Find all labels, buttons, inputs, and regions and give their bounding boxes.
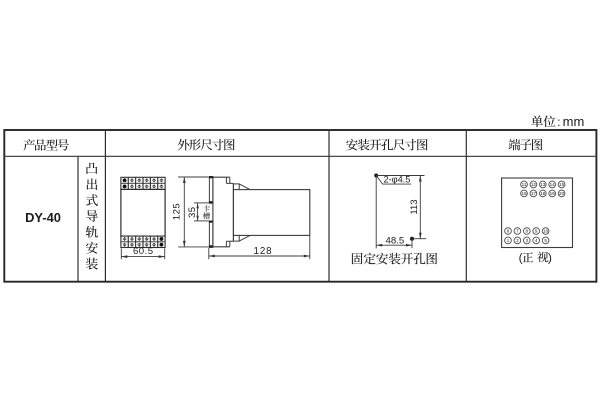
svg-text:8: 8 bbox=[526, 229, 529, 234]
svg-text:125: 125 bbox=[171, 203, 182, 220]
svg-text:12: 12 bbox=[531, 182, 537, 187]
svg-text:128: 128 bbox=[253, 246, 272, 257]
svg-text:9: 9 bbox=[535, 229, 538, 234]
svg-text:7: 7 bbox=[516, 229, 519, 234]
svg-text:18: 18 bbox=[540, 191, 546, 196]
svg-text:5: 5 bbox=[544, 238, 547, 243]
svg-text:113: 113 bbox=[409, 199, 420, 214]
svg-text:17: 17 bbox=[531, 191, 537, 196]
svg-text:3: 3 bbox=[526, 238, 529, 243]
svg-text:16: 16 bbox=[521, 191, 527, 196]
svg-text:15: 15 bbox=[559, 182, 565, 187]
svg-text:6: 6 bbox=[507, 229, 510, 234]
svg-text:2: 2 bbox=[516, 238, 519, 243]
svg-text:48.5: 48.5 bbox=[386, 235, 405, 246]
svg-text:11: 11 bbox=[522, 182, 527, 187]
svg-text:20: 20 bbox=[559, 191, 565, 196]
svg-text:): ) bbox=[548, 250, 552, 264]
svg-text:mm: mm bbox=[563, 114, 585, 129]
svg-text:2-φ4.5: 2-φ4.5 bbox=[383, 175, 410, 185]
svg-text:35: 35 bbox=[187, 206, 198, 217]
svg-text:60.5: 60.5 bbox=[133, 246, 154, 257]
svg-text:13: 13 bbox=[540, 182, 546, 187]
svg-text:1: 1 bbox=[507, 238, 510, 243]
svg-text:10: 10 bbox=[543, 229, 549, 234]
svg-text:14: 14 bbox=[550, 182, 556, 187]
svg-text:4: 4 bbox=[535, 238, 538, 243]
svg-text:(: ( bbox=[519, 250, 523, 264]
svg-text:19: 19 bbox=[550, 191, 556, 196]
svg-text::: : bbox=[557, 117, 560, 129]
svg-text:DY-40: DY-40 bbox=[25, 210, 61, 225]
